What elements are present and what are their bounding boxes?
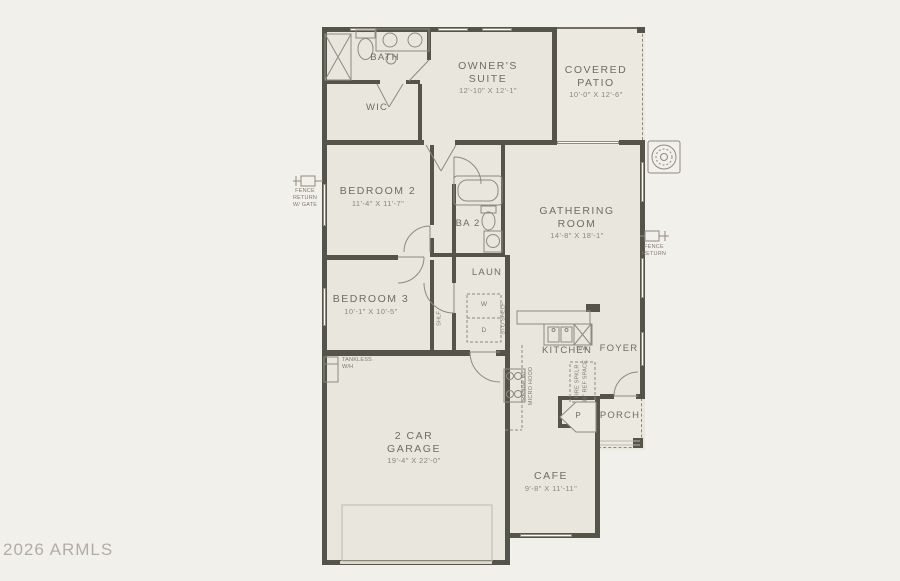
- fence-symbol-right: [645, 231, 659, 241]
- wall: [322, 350, 470, 356]
- room-label-bath: BATH: [355, 52, 415, 63]
- wall: [496, 350, 505, 356]
- dryer-label: D: [478, 327, 490, 335]
- room-label-laundry: LAUN: [462, 267, 512, 278]
- wall: [586, 304, 600, 312]
- room-label-wic: WIC: [347, 102, 407, 113]
- wall: [452, 313, 456, 350]
- room-dims: 11'-4" X 11'-7": [318, 199, 438, 208]
- dishwasher-label: D/W: [570, 346, 594, 353]
- room-dims: 10'-0" X 12'-6": [548, 90, 644, 99]
- window: [438, 28, 468, 31]
- pantry-label: P: [571, 411, 585, 421]
- wall: [427, 27, 431, 60]
- patio-roof-line: [557, 27, 640, 29]
- patio-slider-door: [557, 141, 619, 144]
- room-name: BEDROOM 2: [318, 185, 438, 198]
- room-name: FOYER: [592, 343, 646, 354]
- wall: [558, 424, 598, 428]
- fence-return-gate-label: FENCE RETURN W/ GATE: [290, 188, 320, 209]
- fan-icon: [652, 145, 676, 169]
- wall: [501, 145, 505, 255]
- room-label-gathering-room: GATHERING ROOM 14'-8" X 18'-1": [522, 205, 632, 240]
- exterior-cutout: [510, 538, 645, 565]
- room-label-owners-suite: OWNER'S SUITE 12'-10" X 12'-1": [443, 60, 533, 95]
- wall: [455, 140, 490, 145]
- room-label-bedroom3: BEDROOM 3 10'-1" X 10'-5": [311, 293, 431, 316]
- room-name: COVERED PATIO: [548, 64, 644, 89]
- fence-return-label: FENCE RETURN: [637, 244, 671, 258]
- wall: [600, 394, 614, 399]
- tankless-wh-label: TANKLESS W/H: [342, 357, 380, 371]
- shelf-label: SHLF: [437, 298, 444, 338]
- room-name: PORCH: [590, 410, 650, 421]
- room-name: WIC: [347, 102, 407, 113]
- floor-plan-page: { "watermark": "2026 ARMLS", "rooms": { …: [0, 0, 900, 581]
- room-dims: 19'-4" X 22'-0": [378, 456, 450, 465]
- wall: [595, 396, 600, 448]
- window: [641, 258, 644, 298]
- room-name: 2 CAR GARAGE: [378, 430, 450, 455]
- room-dims: 12'-10" X 12'-1": [443, 86, 533, 95]
- room-name: BATH: [355, 52, 415, 63]
- room-label-porch: PORCH: [590, 410, 650, 421]
- wall: [322, 80, 380, 84]
- room-name: GATHERING ROOM: [522, 205, 632, 230]
- ref-space-label: 36" REF SPACE: [583, 359, 590, 403]
- window: [520, 534, 572, 537]
- room-name: BEDROOM 3: [311, 293, 431, 306]
- wall: [452, 255, 456, 283]
- window: [482, 28, 512, 31]
- room-label-ba2: BA 2: [443, 218, 493, 229]
- sto-shelf-label: STO SHELF: [501, 298, 508, 338]
- room-dims: 14'-8" X 18'-1": [522, 231, 632, 240]
- wall: [595, 448, 600, 538]
- room-label-garage: 2 CAR GARAGE 19'-4" X 22'-0": [378, 430, 450, 465]
- patio-post: [637, 27, 645, 33]
- room-name: BA 2: [443, 218, 493, 229]
- fan-icon: [656, 149, 672, 165]
- range-micro-label: RANGE W/ MICRO HOOD: [521, 361, 551, 411]
- room-name: LAUN: [462, 267, 512, 278]
- wall: [322, 255, 398, 260]
- wall: [430, 253, 505, 257]
- window: [350, 28, 376, 31]
- fence-symbol-left: [301, 176, 315, 186]
- room-label-foyer: FOYER: [592, 343, 646, 354]
- garage-door: [340, 561, 492, 564]
- fan-icon: [661, 154, 668, 161]
- room-name: CAFE: [496, 470, 606, 483]
- room-label-cafe: CAFE 9'-8" X 11'-11": [496, 470, 606, 493]
- wall: [322, 140, 424, 145]
- room-name: OWNER'S SUITE: [443, 60, 533, 85]
- room-dims: 10'-1" X 10'-5": [311, 307, 431, 316]
- wall: [418, 84, 422, 142]
- wall: [636, 394, 645, 399]
- room-label-covered-patio: COVERED PATIO 10'-0" X 12'-6": [548, 64, 644, 99]
- armls-watermark: 2026 ARMLS: [3, 540, 113, 560]
- window: [641, 162, 644, 202]
- room-label-bedroom2: BEDROOM 2 11'-4" X 11'-7": [318, 185, 438, 208]
- wall: [558, 396, 562, 428]
- room-dims: 9'-8" X 11'-11": [496, 484, 606, 493]
- washer-label: W: [478, 301, 490, 309]
- fan-icon: [648, 141, 680, 173]
- porch-post: [633, 438, 643, 448]
- fire-sprinkler-label: FIRE SPKLR: [575, 359, 582, 403]
